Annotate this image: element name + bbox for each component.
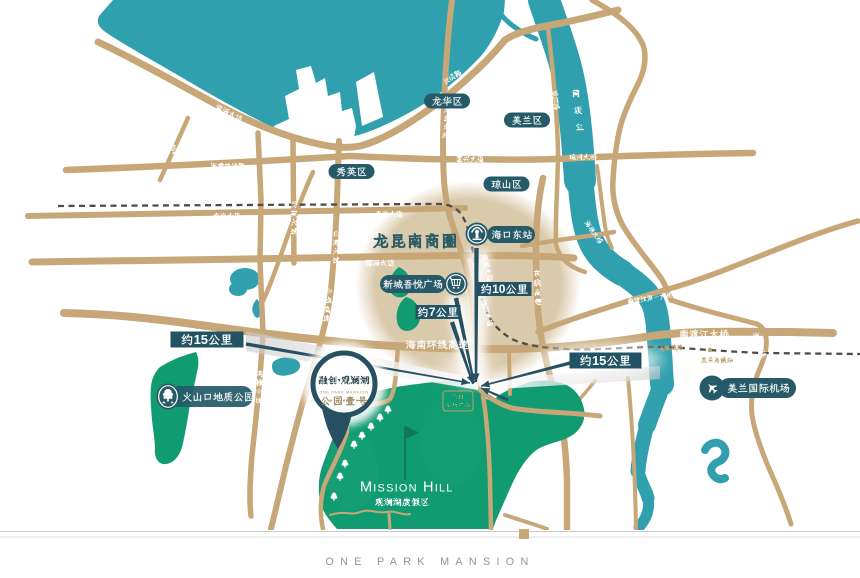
- svg-text:15: 15: [194, 332, 208, 347]
- svg-text:10: 10: [492, 282, 506, 296]
- svg-text:7: 7: [429, 305, 436, 319]
- svg-text:MISSION HILL: MISSION HILL: [360, 480, 454, 496]
- svg-text:ONE PARK MANSION: ONE PARK MANSION: [325, 556, 534, 568]
- svg-text:ONE PARK MANSION: ONE PARK MANSION: [319, 391, 368, 395]
- svg-text:15: 15: [592, 353, 606, 368]
